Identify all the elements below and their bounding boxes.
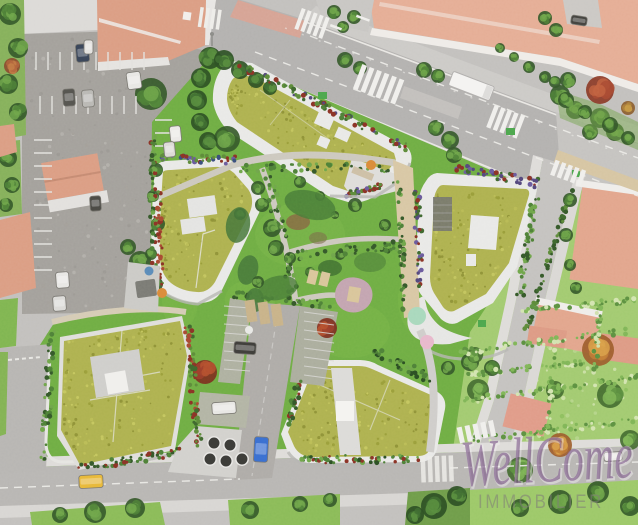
svg-text:WellCome: WellCome [459, 419, 635, 501]
svg-text:IMMOBILIER: IMMOBILIER [478, 492, 604, 513]
